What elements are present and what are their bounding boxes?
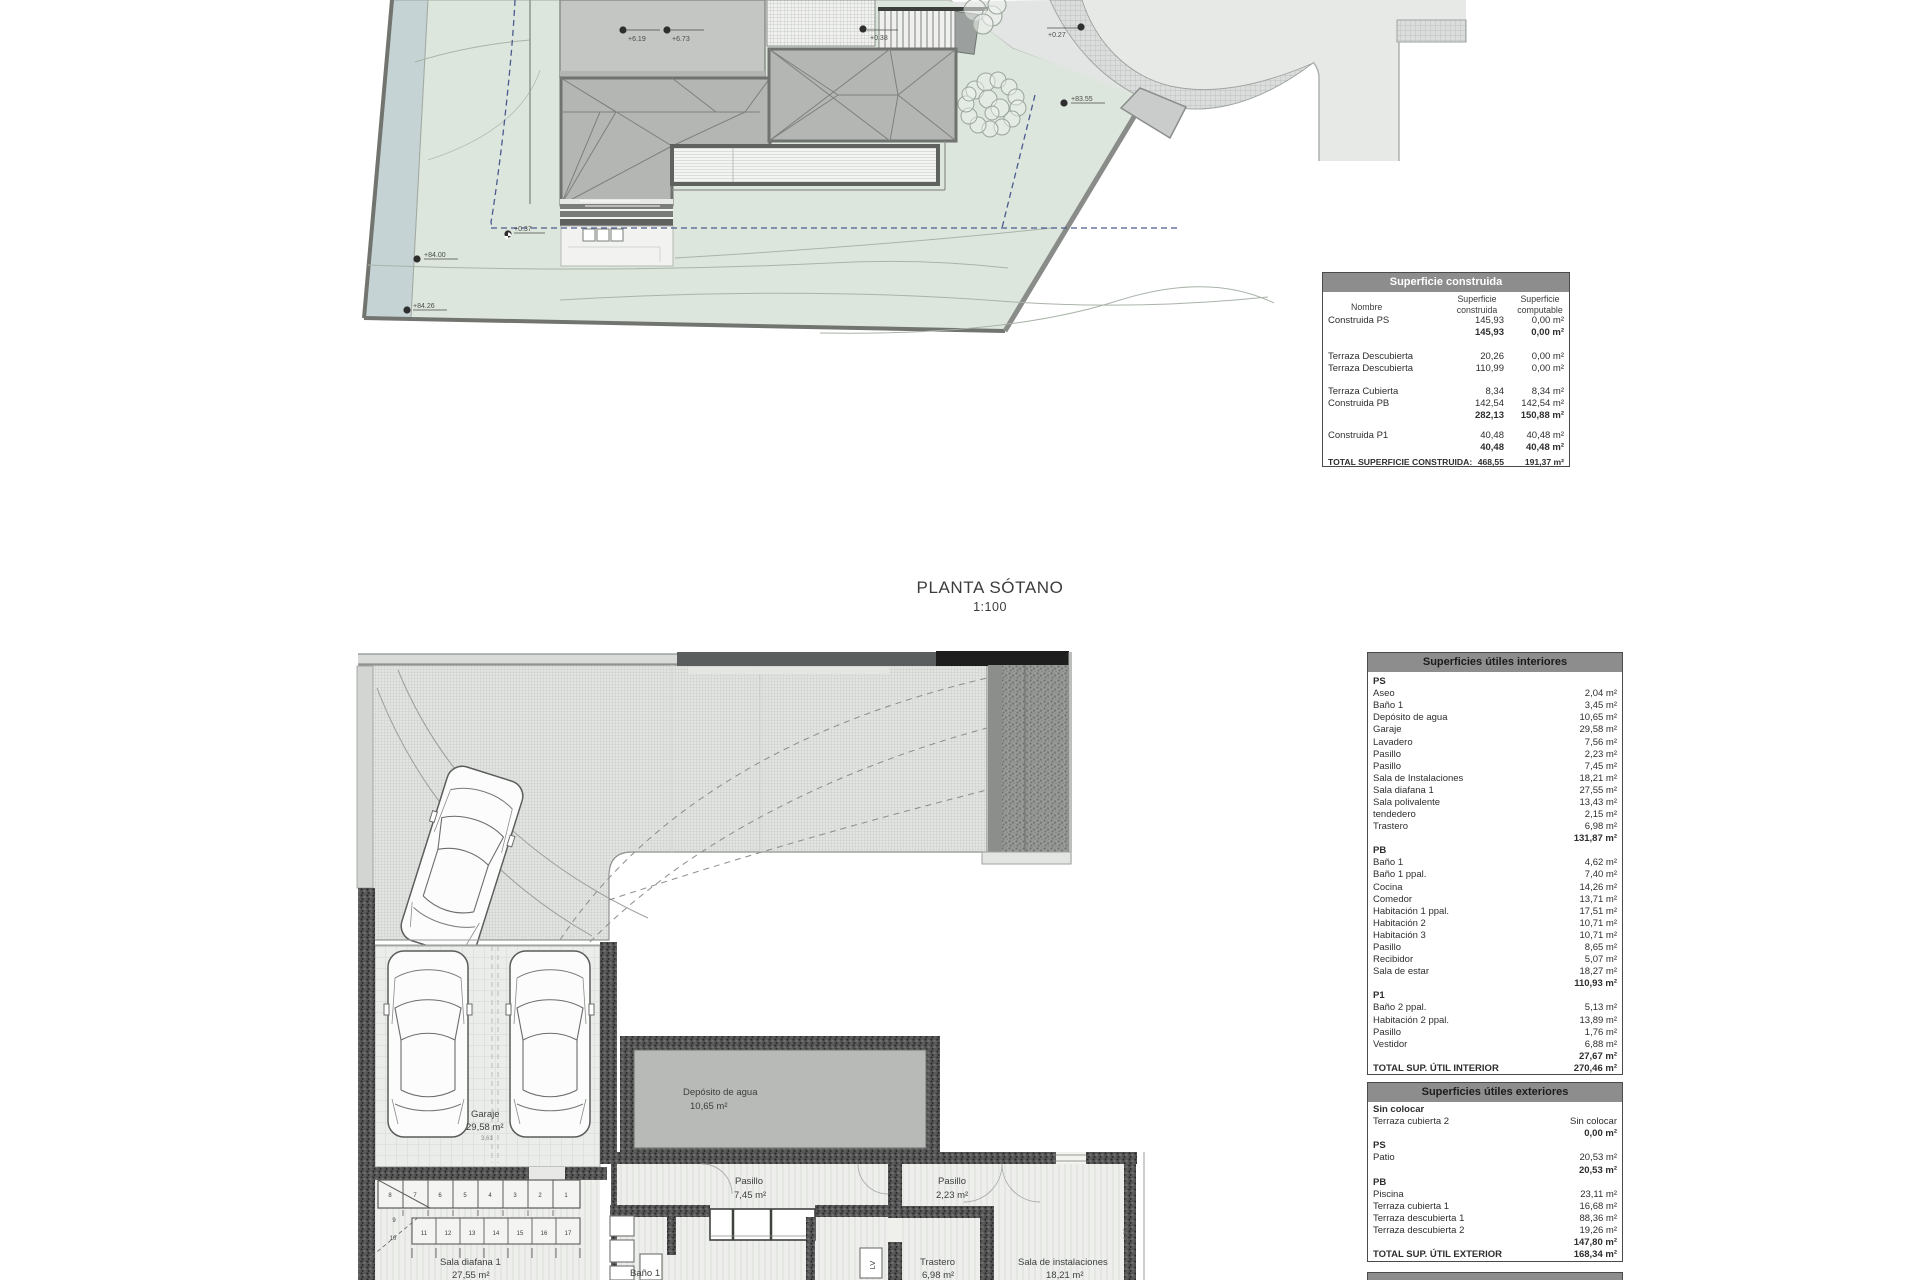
svg-text:Baño 1: Baño 1 bbox=[630, 1268, 660, 1279]
svg-text:14: 14 bbox=[493, 1231, 500, 1237]
svg-text:Sala diafana 1: Sala diafana 1 bbox=[440, 1257, 501, 1268]
svg-text:15: 15 bbox=[517, 1231, 524, 1237]
svg-text:3,61: 3,61 bbox=[481, 1136, 493, 1142]
svg-text:4,28: 4,28 bbox=[1124, 1228, 1130, 1240]
svg-text:6,98 m²: 6,98 m² bbox=[922, 1270, 954, 1280]
svg-text:17: 17 bbox=[565, 1231, 572, 1237]
svg-text:10,65 m²: 10,65 m² bbox=[690, 1101, 728, 1112]
svg-text:2,23 m²: 2,23 m² bbox=[936, 1190, 968, 1201]
svg-text:Trastero: Trastero bbox=[920, 1257, 955, 1268]
svg-text:Depósito de agua: Depósito de agua bbox=[683, 1087, 758, 1098]
svg-text:Pasillo: Pasillo bbox=[938, 1176, 966, 1187]
svg-text:Sala de instalaciones: Sala de instalaciones bbox=[1018, 1257, 1108, 1268]
svg-text:29,58 m²: 29,58 m² bbox=[466, 1122, 504, 1133]
svg-text:12: 12 bbox=[445, 1231, 452, 1237]
svg-text:16: 16 bbox=[541, 1231, 548, 1237]
svg-text:13: 13 bbox=[469, 1231, 476, 1237]
svg-text:LV: LV bbox=[868, 1261, 877, 1270]
svg-text:10: 10 bbox=[390, 1236, 397, 1242]
svg-text:Garaje: Garaje bbox=[471, 1109, 500, 1120]
svg-text:Pasillo: Pasillo bbox=[735, 1176, 763, 1187]
svg-text:27,55 m²: 27,55 m² bbox=[452, 1270, 490, 1280]
svg-text:7,45 m²: 7,45 m² bbox=[734, 1190, 766, 1201]
svg-text:11: 11 bbox=[421, 1231, 428, 1237]
svg-text:18,21 m²: 18,21 m² bbox=[1046, 1270, 1084, 1280]
